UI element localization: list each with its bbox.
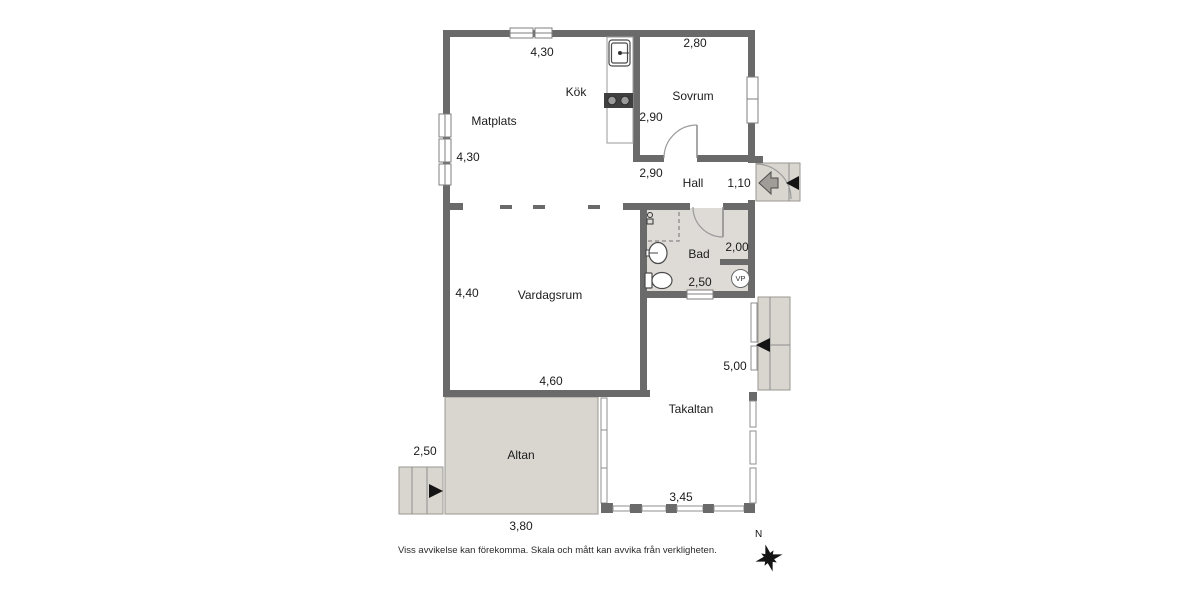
railing-terrace-left: [601, 398, 607, 503]
compass-north-label: N: [755, 529, 762, 540]
measurement-label: 2,50: [413, 445, 436, 457]
room-label-dining: Matplats: [471, 115, 516, 127]
window: [439, 164, 451, 185]
railing-bottom: [714, 506, 744, 511]
measurement-label: 3,80: [509, 520, 532, 532]
room-label-hall: Hall: [683, 177, 704, 189]
measurement-label: 2,50: [688, 276, 711, 288]
wall-top: [443, 30, 755, 37]
wall-hall-south-left: [623, 203, 690, 210]
railing-bottom: [613, 506, 630, 511]
measurement-label: 4,60: [539, 375, 562, 387]
railing-bottom: [677, 506, 703, 511]
measurement-label: 2,90: [639, 167, 662, 179]
toilet-icon: [645, 273, 672, 289]
room-label-kitchen: Kök: [566, 86, 587, 98]
floor-plan-page: Kök Sovrum Matplats Hall Bad Vardagsrum …: [0, 0, 1200, 600]
measurement-label: 4,40: [455, 287, 478, 299]
wall-left: [443, 30, 450, 397]
wall-bedroom-south-right: [697, 155, 755, 162]
wall-entry-stub: [755, 156, 763, 163]
wall-living-east: [640, 203, 647, 397]
openplan-dash: [588, 205, 600, 209]
measurement-label: 4,30: [530, 46, 553, 58]
heat-pump-badge: VP: [731, 269, 750, 288]
compass-rose-icon: [752, 541, 786, 575]
sink-icon: [609, 40, 630, 66]
window: [439, 139, 451, 162]
room-label-bath: Bad: [688, 248, 709, 260]
measurement-label: 5,00: [723, 360, 746, 372]
railing-terrace-right: [750, 468, 756, 503]
window: [510, 28, 533, 38]
measurement-label: 3,45: [669, 491, 692, 503]
window: [687, 290, 713, 299]
floor-plan-drawing: [0, 0, 1200, 600]
room-label-roof-terrace: Takaltan: [669, 403, 714, 415]
door-arc: [664, 125, 697, 158]
wall-bottom: [443, 390, 650, 397]
measurement-label: 1,10: [727, 177, 750, 189]
railing-post: [703, 504, 714, 513]
railing-post: [749, 392, 757, 401]
room-label-bedroom: Sovrum: [672, 90, 713, 102]
openplan-dash: [500, 205, 512, 209]
railing-post: [666, 504, 677, 513]
room-label-living: Vardagsrum: [518, 289, 582, 301]
room-label-terrace: Altan: [507, 449, 534, 461]
wall-bath-south-left: [640, 291, 687, 298]
wall-hall-south-right: [723, 203, 755, 210]
railing-terrace-upper-right: [751, 346, 757, 370]
disclaimer-text: Viss avvikelse kan förekomma. Skala och …: [398, 545, 717, 556]
wall-bath-stub: [720, 259, 748, 265]
window: [747, 77, 758, 123]
railing-post: [601, 503, 613, 513]
railing-bottom: [642, 506, 666, 511]
railing-terrace-upper-right: [751, 303, 757, 342]
measurement-label: 4,30: [456, 151, 479, 163]
stove-icon: [604, 93, 633, 108]
measurement-label: 2,00: [725, 241, 748, 253]
window: [439, 114, 451, 137]
measurement-label: 2,90: [639, 111, 662, 123]
railing-post: [630, 504, 642, 513]
wall-bedroom-south-left: [633, 155, 664, 162]
wall-bath-south-right: [713, 291, 755, 298]
railing-terrace-right: [750, 431, 756, 464]
openplan-dash: [533, 205, 545, 209]
railing-post: [744, 503, 755, 513]
measurement-label: 2,80: [683, 37, 706, 49]
wall-kitchen-bedroom: [633, 37, 640, 155]
window: [535, 28, 552, 38]
wall-openplan-stub-left: [450, 203, 463, 210]
railing-terrace-right: [750, 401, 756, 427]
